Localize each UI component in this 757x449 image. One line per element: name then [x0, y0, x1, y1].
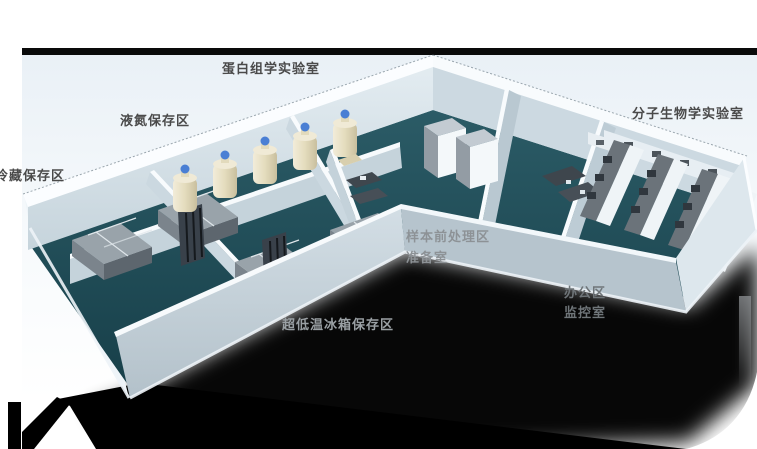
area-label-sample-pretreatment: 样本前处理区 [406, 231, 490, 244]
area-label-cold-storage: 冷藏保存区 [0, 170, 65, 183]
area-label-office: 办公区 [564, 287, 606, 300]
area-label-ult-freezer-storage: 超低温冰箱保存区 [282, 319, 394, 332]
shadow-bar-bottom-left [8, 402, 21, 449]
area-label-monitoring-room: 监控室 [564, 307, 606, 320]
area-label-liquid-nitrogen: 液氮保存区 [120, 115, 190, 128]
top-rule [22, 48, 757, 55]
area-label-preparation-room: 准备室 [406, 252, 448, 265]
area-label-molecular-biology-lab: 分子生物学实验室 [632, 108, 744, 121]
lab-floorplan-screenshot: 蛋白组学实验室 液氮保存区 冷藏保存区 分子生物学实验室 样本前处理区 准备室 … [0, 0, 757, 449]
building-illustration [0, 0, 757, 449]
shadow-gray-streak [739, 296, 751, 388]
area-label-proteomics-lab: 蛋白组学实验室 [222, 63, 320, 76]
